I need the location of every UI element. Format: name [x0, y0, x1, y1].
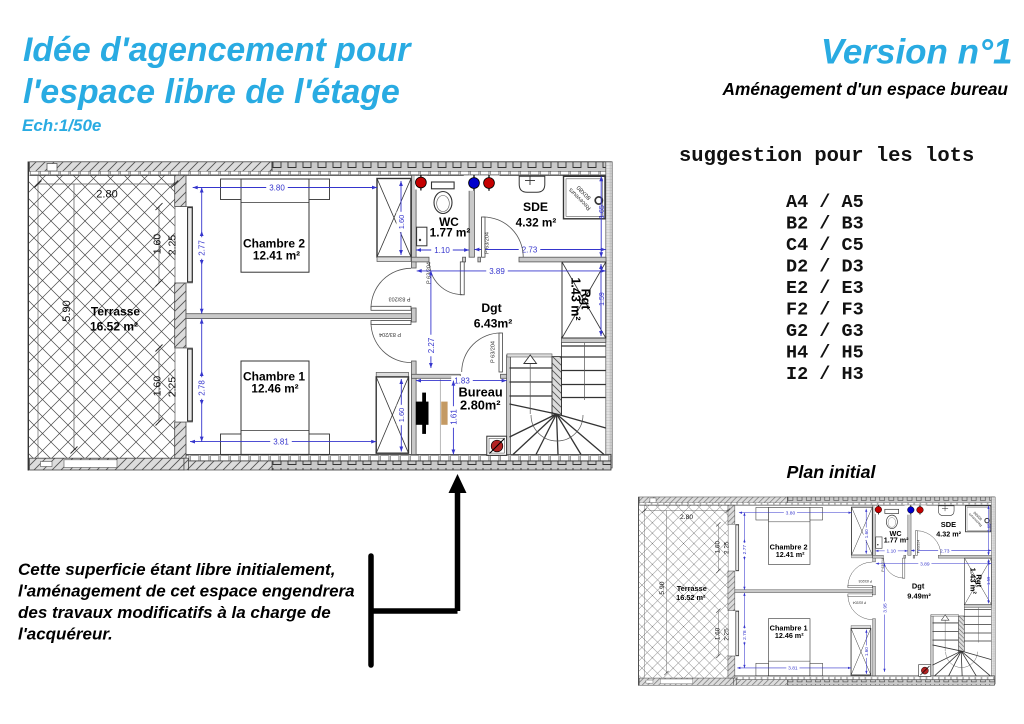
svg-text:12.46 m²: 12.46 m² [251, 381, 298, 395]
svg-text:F2 / F3: F2 / F3 [786, 300, 864, 321]
svg-text:P 83/204: P 83/204 [379, 331, 401, 337]
svg-text:1.43 m²: 1.43 m² [968, 568, 977, 595]
svg-text:Terrasse: Terrasse [91, 305, 140, 319]
svg-text:Terrasse: Terrasse [677, 584, 707, 593]
svg-text:2.25: 2.25 [723, 541, 730, 554]
svg-text:Cette superficie étant libre i: Cette superficie étant libre initialemen… [18, 560, 335, 579]
svg-text:3.89: 3.89 [489, 267, 505, 276]
svg-text:12.46 m²: 12.46 m² [775, 631, 804, 640]
svg-text:l'acquéreur.: l'acquéreur. [18, 625, 113, 644]
svg-text:1.83: 1.83 [454, 377, 470, 386]
svg-text:Ech:1/50e: Ech:1/50e [22, 116, 101, 135]
svg-text:4.32 m²: 4.32 m² [936, 529, 961, 538]
svg-text:Version n°1: Version n°1 [821, 33, 1013, 72]
svg-text:P 83/203: P 83/203 [858, 579, 872, 583]
svg-text:5.90: 5.90 [61, 300, 73, 321]
svg-text:16.52 m²: 16.52 m² [676, 593, 706, 602]
svg-text:2.78: 2.78 [742, 630, 748, 640]
svg-text:C4 / C5: C4 / C5 [786, 235, 864, 256]
svg-text:3.81: 3.81 [273, 438, 289, 447]
svg-text:1.59: 1.59 [986, 576, 991, 585]
svg-text:16.52 m²: 16.52 m² [90, 320, 138, 334]
svg-text:1.60: 1.60 [397, 408, 406, 423]
svg-text:P 83/203: P 83/203 [389, 296, 411, 302]
svg-text:P 63/204: P 63/204 [917, 540, 921, 554]
svg-text:1.10: 1.10 [887, 549, 897, 555]
svg-text:1.60: 1.60 [864, 529, 869, 538]
svg-text:G2 / G3: G2 / G3 [786, 321, 864, 342]
svg-text:suggestion pour les lots: suggestion pour les lots [679, 145, 974, 168]
svg-text:3.80: 3.80 [786, 510, 796, 516]
svg-text:3.80: 3.80 [269, 183, 285, 192]
svg-text:2.77: 2.77 [198, 240, 207, 256]
svg-text:Plan initial: Plan initial [787, 462, 877, 482]
svg-text:2.80: 2.80 [96, 189, 117, 201]
svg-text:P 63/204: P 63/204 [485, 232, 491, 254]
svg-text:2.25: 2.25 [167, 235, 179, 256]
svg-text:Aménagement d'un espace bureau: Aménagement d'un espace bureau [722, 79, 1009, 99]
svg-text:Dgt: Dgt [481, 301, 501, 315]
svg-text:D2 / D3: D2 / D3 [786, 257, 864, 278]
svg-text:3.95: 3.95 [882, 603, 888, 613]
svg-text:P 63/204: P 63/204 [491, 341, 497, 363]
svg-text:1.60: 1.60 [152, 234, 164, 255]
svg-text:2.80: 2.80 [680, 514, 693, 521]
svg-text:2.73: 2.73 [522, 245, 538, 254]
svg-text:H4 / H5: H4 / H5 [786, 343, 864, 364]
svg-text:A4 / A5: A4 / A5 [786, 192, 864, 213]
svg-text:B2 / B3: B2 / B3 [786, 214, 864, 235]
svg-text:I2 / H3: I2 / H3 [786, 364, 864, 385]
svg-text:E2 / E3: E2 / E3 [786, 278, 864, 299]
svg-text:1.60: 1.60 [152, 376, 164, 397]
svg-text:P 83/204: P 83/204 [853, 601, 867, 605]
svg-text:4.32 m²: 4.32 m² [516, 216, 557, 230]
svg-text:2.73: 2.73 [940, 548, 950, 554]
svg-text:2.25: 2.25 [167, 377, 179, 398]
svg-text:1.10: 1.10 [434, 246, 450, 255]
svg-text:1.77 m²: 1.77 m² [884, 536, 909, 545]
svg-text:1.61: 1.61 [449, 409, 458, 425]
svg-text:1.59: 1.59 [599, 292, 606, 306]
svg-text:1.77 m²: 1.77 m² [430, 225, 471, 239]
svg-text:1.65: 1.65 [599, 205, 606, 219]
svg-text:1.43 m²: 1.43 m² [569, 277, 583, 320]
svg-text:SDE: SDE [523, 200, 548, 214]
svg-text:1.60: 1.60 [714, 541, 721, 554]
svg-text:3.81: 3.81 [788, 666, 798, 672]
svg-text:1.60: 1.60 [714, 627, 721, 640]
svg-text:2.27: 2.27 [427, 337, 436, 353]
svg-text:1.65: 1.65 [986, 523, 991, 532]
svg-text:2.80m²: 2.80m² [460, 398, 501, 413]
svg-text:des travaux modificatifs à la: des travaux modificatifs à la charge de [18, 603, 331, 622]
svg-text:12.41 m²: 12.41 m² [776, 550, 805, 559]
svg-text:Dgt: Dgt [912, 582, 925, 591]
svg-text:SDE: SDE [941, 520, 956, 529]
svg-text:2.77: 2.77 [742, 545, 748, 555]
svg-text:12.41 m²: 12.41 m² [253, 249, 300, 263]
svg-text:2.25: 2.25 [723, 628, 730, 641]
svg-text:1.60: 1.60 [864, 647, 869, 656]
svg-text:1.60: 1.60 [397, 215, 406, 230]
svg-text:l'espace libre de l'étage: l'espace libre de l'étage [23, 73, 400, 111]
svg-text:9.49m²: 9.49m² [907, 591, 931, 600]
svg-text:5.90: 5.90 [659, 581, 666, 594]
svg-text:2.78: 2.78 [198, 380, 207, 396]
svg-text:6.43m²: 6.43m² [474, 317, 513, 331]
svg-text:l'aménagement de cet espace en: l'aménagement de cet espace engendrera [18, 582, 355, 601]
svg-text:3.89: 3.89 [920, 561, 930, 567]
svg-text:Idée d'agencement pour: Idée d'agencement pour [23, 31, 412, 69]
